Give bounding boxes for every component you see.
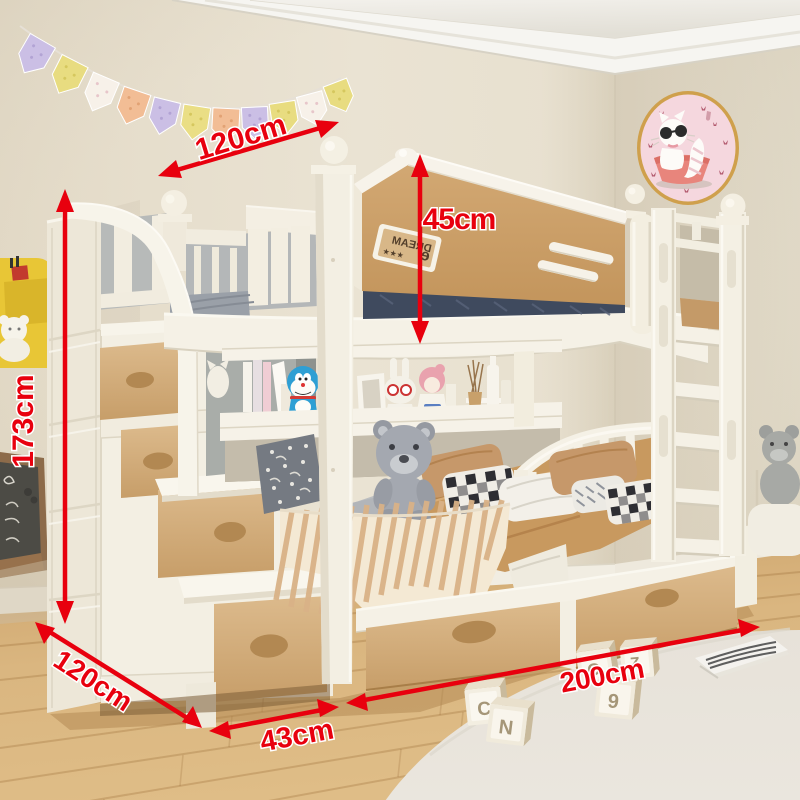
svg-text:N: N (497, 716, 514, 740)
svg-text:45cm: 45cm (423, 203, 496, 236)
svg-text:173cm: 173cm (7, 374, 40, 467)
svg-text:9: 9 (607, 690, 620, 713)
